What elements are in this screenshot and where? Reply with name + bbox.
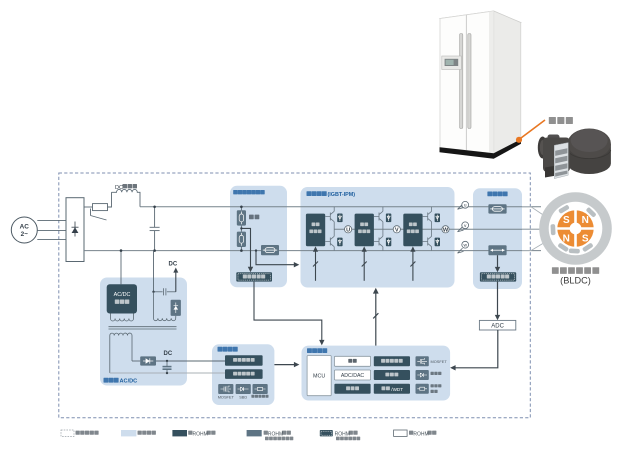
svg-text:u: u [464, 204, 467, 209]
svg-text:ROHM: ROHM [413, 431, 428, 437]
svg-text:MCU: MCU [313, 374, 325, 380]
svg-text:S: S [582, 234, 589, 245]
svg-text:(BLDC): (BLDC) [560, 276, 591, 286]
svg-text:N: N [582, 215, 589, 226]
svg-text:ROHM: ROHM [193, 431, 208, 437]
svg-text:U: U [346, 228, 350, 234]
svg-text:W: W [443, 228, 449, 234]
svg-text:S: S [563, 215, 570, 226]
svg-text:AC: AC [20, 224, 30, 231]
svg-text:AC/DC: AC/DC [120, 379, 138, 385]
svg-text:SBD: SBD [239, 394, 247, 399]
svg-text:V: V [395, 228, 399, 234]
svg-text:MOSFET: MOSFET [431, 359, 448, 364]
svg-text:w: w [463, 244, 467, 249]
svg-text:ADC/DAC: ADC/DAC [341, 373, 365, 379]
svg-text:2~: 2~ [21, 231, 29, 238]
svg-text:DC: DC [115, 185, 123, 191]
svg-text:ADC: ADC [491, 324, 504, 330]
svg-text:N: N [563, 234, 570, 245]
svg-text:AC/DC: AC/DC [114, 292, 131, 298]
svg-text:ROHM: ROHM [335, 431, 350, 437]
svg-text:MOSFET: MOSFET [218, 394, 235, 399]
svg-text:/WDT: /WDT [391, 387, 403, 392]
svg-text:(IGBT-IPM): (IGBT-IPM) [328, 192, 356, 198]
svg-text:ROHM: ROHM [268, 431, 283, 437]
svg-text:DC: DC [169, 262, 178, 268]
svg-text:DC: DC [164, 351, 173, 357]
